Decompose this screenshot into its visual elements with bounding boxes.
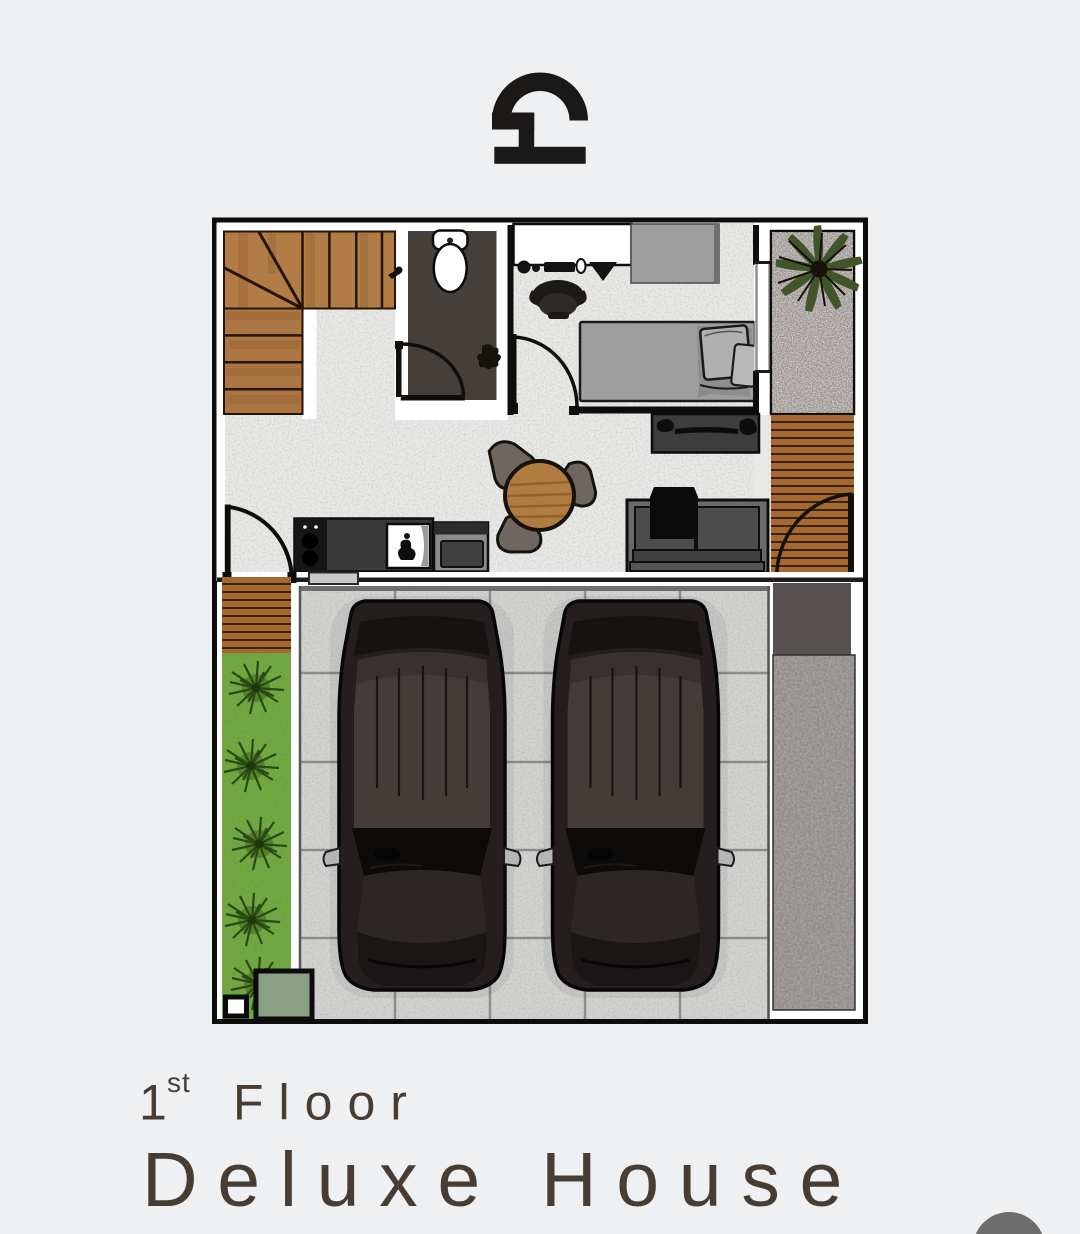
svg-text:1: 1 — [139, 1075, 167, 1131]
svg-text:st: st — [167, 1067, 191, 1098]
svg-text:Deluxe House: Deluxe House — [142, 1137, 862, 1223]
svg-text:Floor: Floor — [233, 1075, 422, 1131]
